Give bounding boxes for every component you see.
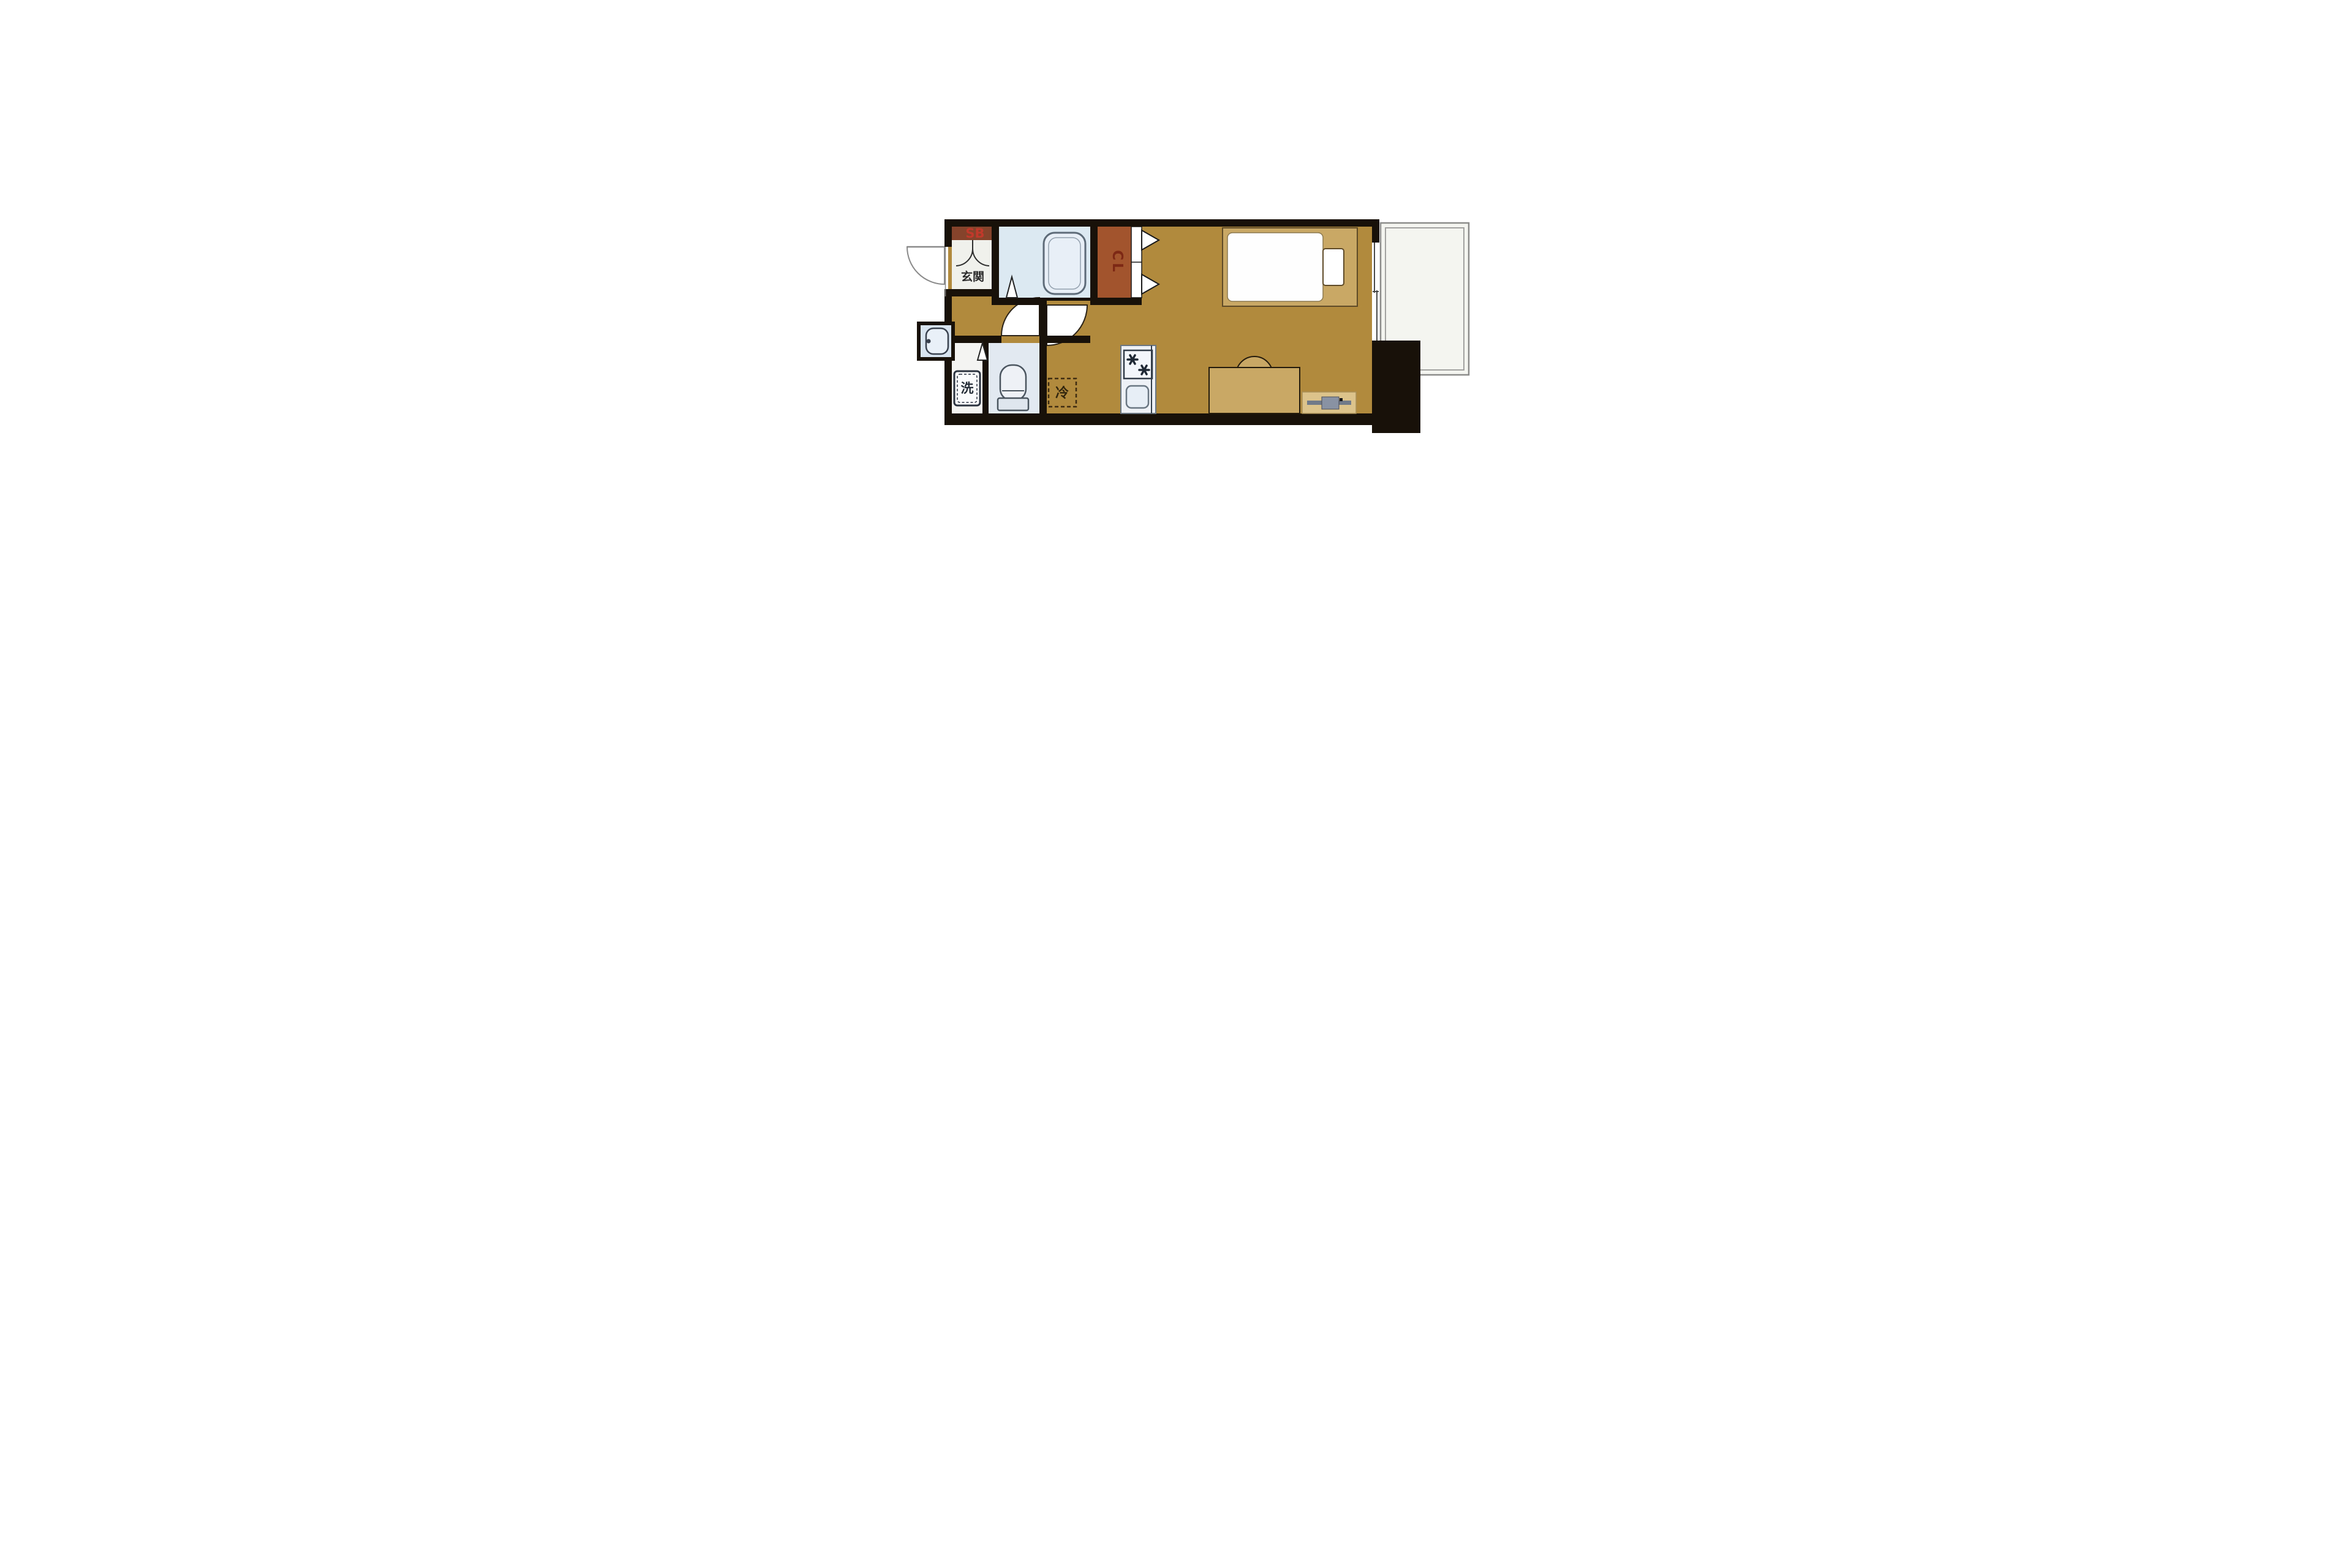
bed-pillow: [1323, 249, 1344, 285]
kitchen-sink: [1126, 386, 1148, 408]
wall-hall-right: [1047, 336, 1090, 343]
closet-label: CL: [1109, 250, 1125, 274]
wall-row-under-closet: [1098, 298, 1142, 305]
wall-hall-left: [952, 336, 1001, 343]
wall-top: [944, 219, 1379, 227]
wall-left-upper: [944, 219, 952, 247]
wall-left-mid: [944, 296, 952, 323]
door-leaf-living-room: [1047, 298, 1098, 301]
bed: [1223, 228, 1357, 306]
wall-column-bottom-right: [1372, 341, 1420, 433]
sliding-window: [1372, 243, 1379, 341]
kitchen-unit: [1121, 345, 1156, 413]
wall-row-under-entrance: [944, 289, 999, 296]
wall-bath-closet: [1090, 219, 1098, 305]
tv-knob: [1340, 398, 1343, 401]
floorplan-page: 洗 冷: [706, 0, 1646, 627]
toilet: [998, 365, 1028, 410]
bathtub: [1044, 233, 1085, 294]
washing-machine: 洗: [954, 371, 980, 405]
desk: [1209, 367, 1300, 413]
refrigerator-label: 冷: [1055, 385, 1069, 401]
stove: [1124, 350, 1152, 379]
toilet-bowl: [1000, 365, 1026, 401]
entrance-label: 玄関: [961, 269, 984, 284]
tv-center-block: [1322, 397, 1339, 409]
washing-machine-label: 洗: [961, 381, 974, 396]
floorplan-drawing: 洗 冷: [706, 0, 1646, 627]
wash-basin-faucet: [927, 339, 931, 344]
wash-basin-unit: [919, 323, 953, 359]
wall-left-lower: [944, 359, 952, 425]
toilet-tank: [998, 398, 1028, 410]
tv-board: [1302, 392, 1356, 413]
bed-mattress: [1227, 233, 1323, 301]
shoe-box-label: SB: [965, 226, 984, 241]
wall-right-upper: [1372, 219, 1379, 243]
wall-toilet-right: [1039, 301, 1047, 413]
wall-bottom: [944, 413, 1379, 425]
